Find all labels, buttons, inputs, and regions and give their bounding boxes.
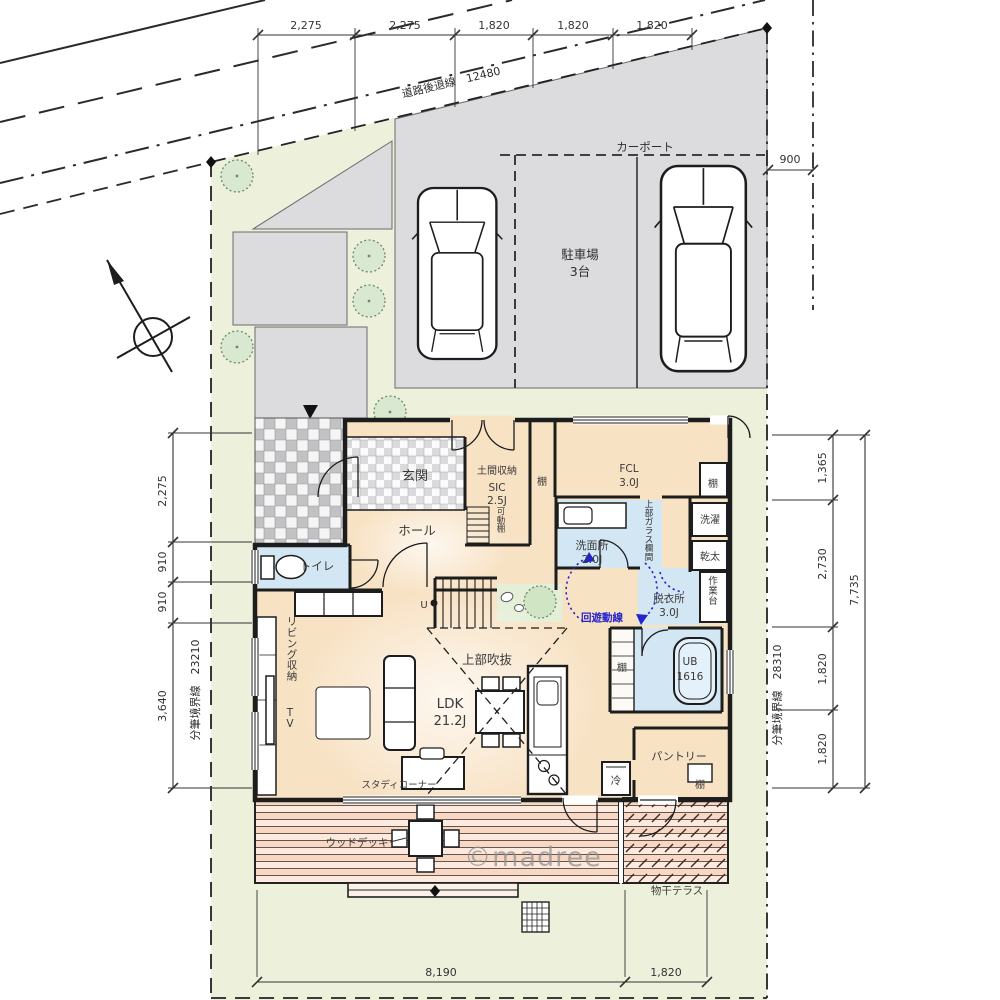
site-floor-plan: カーポート 駐車場 3台 玄関 土間収納 SIC 2.5J 可動棚 棚 ホール … [0, 0, 1000, 1000]
bath-size-label: 1616 [677, 671, 704, 683]
tv-label: TV [286, 707, 295, 730]
porch-tile [255, 418, 345, 545]
dim-top-3: 1,820 [478, 19, 510, 32]
terrace-hatch [623, 798, 728, 883]
void-above-label: 上部吹抜 [462, 652, 513, 667]
stairs-up-label: U [420, 600, 427, 611]
dim-top-4: 1,820 [557, 19, 589, 32]
genkan-label: 玄関 [402, 469, 428, 484]
boundary-right-label: 分筆境界線 28310 [770, 645, 784, 746]
dim-top-1: 2,275 [290, 19, 322, 32]
parking-label: 駐車場 [561, 247, 599, 262]
shelf-label-2: 棚 [708, 477, 718, 490]
floor-plan-canvas: カーポート 駐車場 3台 玄関 土間収納 SIC 2.5J 可動棚 棚 ホール … [0, 0, 1000, 1000]
dim-bottom-1: 8,190 [425, 966, 457, 979]
dim-left-1: 2,275 [156, 475, 169, 507]
dim-right-2: 2,730 [816, 548, 829, 580]
dim-top-2: 2,275 [389, 19, 421, 32]
hall-label: ホール [398, 523, 436, 538]
senmen-label: 洗面所 [576, 539, 609, 552]
doma-storage-label: 土間収納 [477, 464, 517, 477]
datsui-size-label: 3.0J [659, 607, 679, 619]
ldk-label: LDK [437, 696, 465, 712]
dim-top-5: 1,820 [636, 19, 668, 32]
carport-label: カーポート [616, 140, 674, 154]
wood-deck-label: ウッドデッキ [326, 836, 389, 849]
sic-size-label: 2.5J [487, 495, 507, 507]
dim-right-1: 1,365 [816, 452, 829, 484]
terrace-label: 物干テラス [651, 884, 703, 897]
living-storage-label: リビング収納 [287, 616, 298, 683]
circulation-label: 回遊動線 [581, 611, 623, 624]
glass-transom-note: 上部ガラス欄間 [645, 500, 654, 563]
dryer-label: 乾太 [700, 550, 720, 563]
shelf-label-3: 棚 [617, 661, 627, 674]
outdoor-unit-grid [522, 902, 549, 932]
bath-label: UB [683, 656, 698, 668]
dim-left-4: 3,640 [156, 690, 169, 722]
parking-count-label: 3台 [570, 264, 590, 279]
dim-right-total: 7,735 [848, 574, 861, 606]
watermark: ©madree [464, 842, 602, 873]
datsui-label: 脱衣所 [653, 592, 685, 605]
ldk-size-label: 21.2J [434, 714, 467, 729]
dim-bottom-2: 1,820 [650, 966, 682, 979]
driveway-lower [255, 327, 367, 418]
pantry-label: パントリー [651, 750, 707, 763]
dim-right-4: 1,820 [816, 733, 829, 765]
senmen-size-label: 2.0J [582, 553, 603, 566]
driveway-mid [233, 232, 347, 325]
fcl-size-label: 3.0J [619, 477, 639, 489]
dim-left-2: 910 [156, 552, 169, 573]
fridge-label: 冷 [611, 774, 622, 787]
fcl-label: FCL [619, 463, 638, 475]
shelf-label-1: 棚 [537, 475, 547, 488]
study-label: スタディコーナー [361, 779, 436, 791]
sic-shelf-note: 可動棚 [497, 507, 506, 535]
sic-label: SIC [488, 482, 505, 494]
toilet-label: トイレ [300, 559, 335, 573]
shelf-label-4: 棚 [695, 778, 705, 791]
dim-left-3: 910 [156, 592, 169, 613]
boundary-left-label: 分筆境界線 23210 [188, 640, 202, 741]
laundry-label: 洗濯 [700, 514, 720, 526]
dim-right-3: 1,820 [816, 653, 829, 685]
worktop-label: 作業台 [708, 575, 718, 607]
dim-top-right-900: 900 [780, 153, 801, 166]
